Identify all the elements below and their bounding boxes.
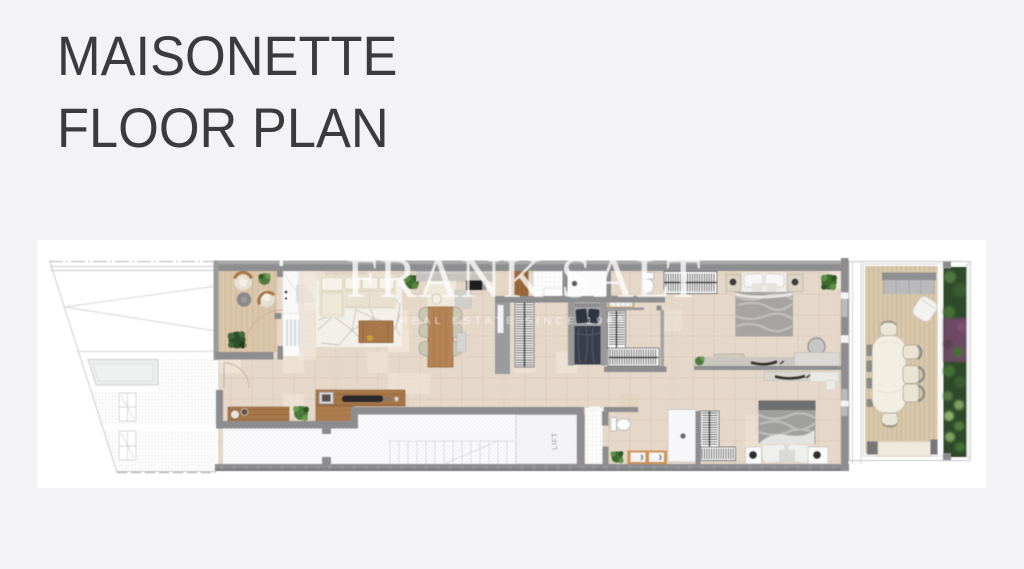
svg-text:FRANK SALT: FRANK SALT — [346, 247, 702, 310]
svg-text:LIFT: LIFT — [552, 432, 559, 450]
svg-text:REAL ESTATE SINCE 1969: REAL ESTATE SINCE 1969 — [400, 315, 627, 327]
